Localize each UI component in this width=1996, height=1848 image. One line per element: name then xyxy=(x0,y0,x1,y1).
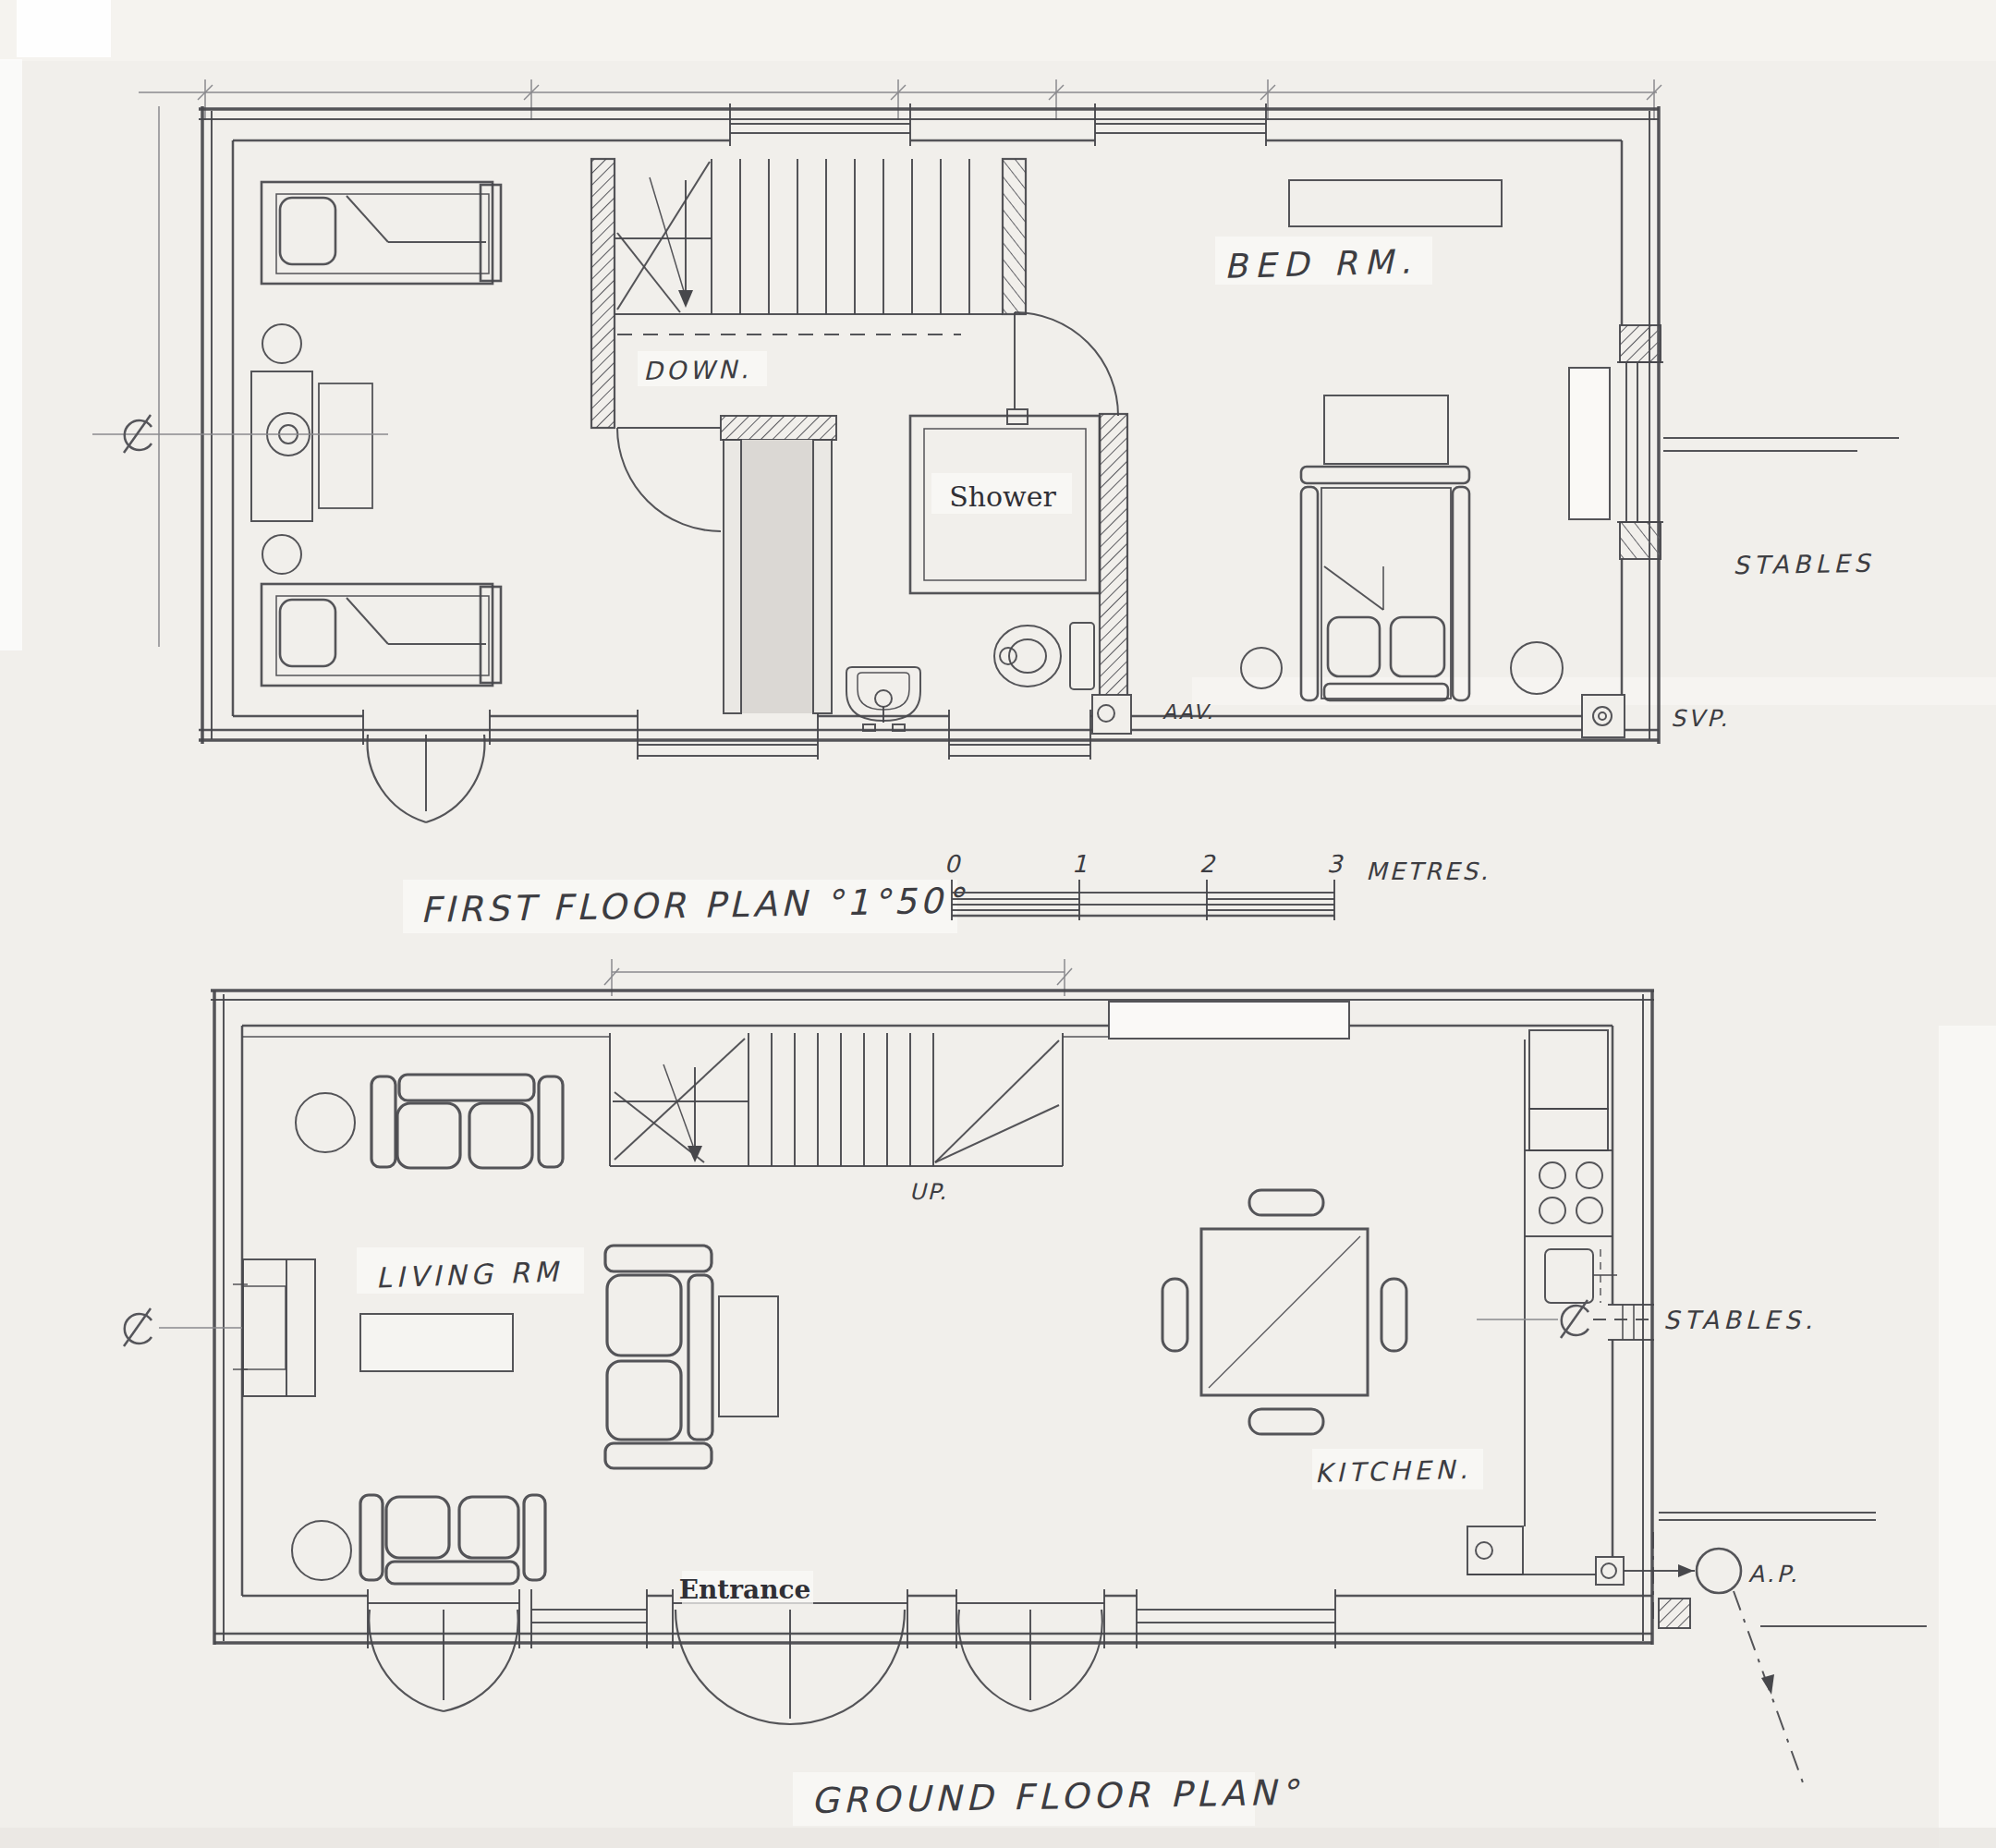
stables-label-ground: STABLES. xyxy=(1663,1306,1817,1334)
scanned-floor-plan-sheet: DOWN. xyxy=(0,0,1996,1848)
double-bed xyxy=(1301,395,1469,700)
svp-corner-box xyxy=(1596,1557,1624,1585)
bottom-openings-ground-floor xyxy=(368,1589,1335,1724)
kitchen-label: KITCHEN. xyxy=(1314,1454,1472,1489)
scale-bar: 0 1 2 3 METRES. xyxy=(944,850,1491,920)
shower-label: Shower xyxy=(949,480,1056,513)
ap-label: A.P. xyxy=(1748,1561,1800,1587)
svp-label: SVP. xyxy=(1671,705,1730,732)
ground-floor-plan: Entrance UP. xyxy=(124,959,1927,1826)
outer-walls-first-floor xyxy=(199,106,1659,744)
dining-set xyxy=(1162,1190,1406,1434)
centerline-symbol xyxy=(124,1308,152,1346)
single-bed-2 xyxy=(262,584,501,686)
shelf xyxy=(1289,180,1502,226)
scale-tick-0: 0 xyxy=(944,850,962,878)
fireplace xyxy=(233,1259,315,1396)
living-rm-label: LIVING RM xyxy=(375,1255,563,1294)
scale-tick-1: 1 xyxy=(1072,850,1088,878)
low-table xyxy=(360,1314,513,1371)
scale-tick-3: 3 xyxy=(1327,850,1345,878)
stool xyxy=(262,535,301,574)
top-window xyxy=(1109,1002,1349,1039)
coffee-table xyxy=(719,1296,778,1416)
floor-plan-drawing: DOWN. xyxy=(0,0,1996,1848)
bottom-openings-first-floor xyxy=(363,695,1625,822)
scale-tick-2: 2 xyxy=(1199,850,1216,878)
stool xyxy=(262,324,301,363)
right-wall-window-first-floor xyxy=(1569,325,1899,559)
ground-floor-title: GROUND FLOOR PLAN° xyxy=(810,1772,1302,1821)
down-label: DOWN. xyxy=(643,355,752,385)
sofa-bottom xyxy=(360,1495,545,1584)
toilet-cistern xyxy=(1070,623,1094,689)
first-floor-plan: DOWN. xyxy=(92,79,1899,933)
sofa-middle xyxy=(605,1246,712,1468)
aav-label: AAV. xyxy=(1162,700,1215,723)
sofa-top xyxy=(371,1075,563,1168)
basin xyxy=(846,667,920,731)
staircase-ground-floor xyxy=(610,1033,1063,1166)
stables-label-first-floor: STABLES xyxy=(1733,549,1874,580)
dressing-table xyxy=(251,371,372,521)
side-table xyxy=(292,1521,351,1580)
scale-unit: METRES. xyxy=(1366,857,1491,885)
entrance-label: Entrance xyxy=(679,1574,811,1605)
side-table xyxy=(296,1093,355,1152)
bed-rm-label: BED RM. xyxy=(1223,242,1418,285)
kitchen xyxy=(1162,1030,1624,1585)
up-label: UP. xyxy=(909,1179,948,1205)
sink xyxy=(1545,1249,1593,1303)
single-bed-1 xyxy=(262,182,501,284)
stables-annotation-ground: STABLES. xyxy=(1477,1300,1817,1338)
staircase-first-floor xyxy=(591,159,1026,428)
dimension-lines-first-floor xyxy=(139,79,1661,647)
bathroom-first-floor xyxy=(846,414,1131,734)
hob xyxy=(1540,1162,1602,1223)
toilet-bowl xyxy=(994,626,1061,687)
